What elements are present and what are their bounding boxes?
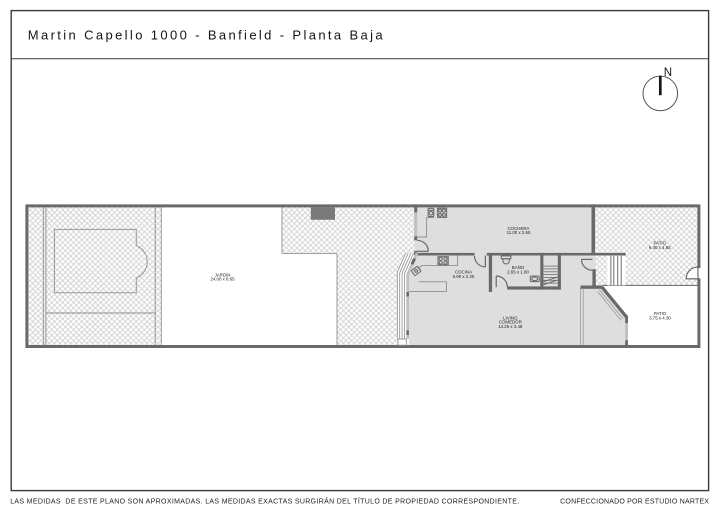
svg-text:N: N — [664, 67, 672, 79]
svg-text:5.90 x 2.25: 5.90 x 2.25 — [453, 274, 475, 279]
svg-text:2.65 x 1.80: 2.65 x 1.80 — [507, 270, 529, 275]
svg-text:14.25 x 3.48: 14.25 x 3.48 — [498, 324, 523, 329]
svg-text:6.40 x 4.85: 6.40 x 4.85 — [649, 245, 671, 250]
svg-text:Martin Capello 1000 - Banfield: Martin Capello 1000 - Banfield - Planta … — [28, 27, 385, 42]
svg-text:11.00 x 2.65: 11.00 x 2.65 — [507, 230, 531, 235]
svg-text:LAS MEDIDAS DE ESTE PLANO SON: LAS MEDIDAS DE ESTE PLANO SON APROXIMADA… — [10, 497, 519, 506]
svg-text:24.00 x 8.65: 24.00 x 8.65 — [210, 277, 235, 282]
svg-text:CONFECCIONADO POR ESTUDIO NART: CONFECCIONADO POR ESTUDIO NARTEX — [560, 499, 709, 506]
svg-text:3.75 x 4.30: 3.75 x 4.30 — [649, 315, 671, 320]
